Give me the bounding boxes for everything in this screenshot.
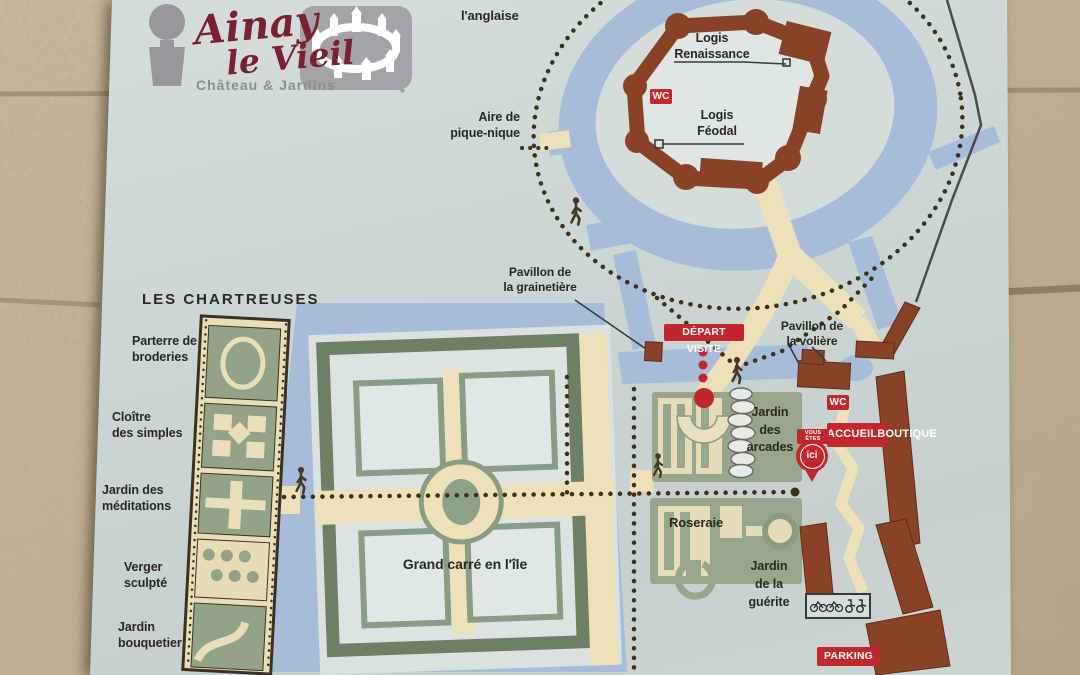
- path-end-dot: [791, 488, 800, 497]
- topiary-icon: [149, 4, 185, 86]
- label-cloitre-des-simples: Cloîtredes simples: [112, 410, 182, 441]
- label-jardin-de-la-guerite: Jardinde laguérite: [740, 557, 798, 611]
- label-logis-renaissance: LogisRenaissance: [666, 31, 758, 62]
- accueil-boutique-badge: ACCUEILBOUTIQUE: [827, 423, 887, 447]
- label-anglaise: l'anglaise: [461, 8, 519, 24]
- bike-and-accessibility-box: [806, 594, 870, 618]
- label-jardin-bouquetier: Jardinbouquetier: [118, 620, 182, 651]
- label-pavillon-voliere: Pavillon dela volière: [762, 319, 862, 349]
- depart-visite-badge: DÉPART VISITE: [664, 324, 744, 341]
- label-les-chartreuses: LES CHARTREUSES: [142, 291, 320, 310]
- you-are-here-pin: ici: [796, 440, 828, 472]
- label-parterre-de-broderies: Parterre debroderies: [132, 334, 197, 365]
- chartreuses-garden-strip: [183, 316, 289, 674]
- logo-subtitle: Château & Jardins: [196, 77, 336, 93]
- you-are-here-pin-text: ici: [800, 444, 825, 469]
- walker-icon: [571, 197, 580, 224]
- photo-of-garden-map-sign: Ainay le Vieil Château & Jardins l'angla…: [0, 0, 1080, 675]
- wc-badge-accueil: WC: [827, 395, 849, 410]
- grand-carre-island: [308, 325, 622, 675]
- label-roseraie: Roseraie: [669, 515, 723, 531]
- label-jardin-des-meditations: Jardin desméditations: [102, 483, 171, 514]
- parking-badge: PARKING: [817, 647, 880, 666]
- label-logis-feodal: LogisFéodal: [672, 108, 762, 139]
- label-grand-carre: Grand carré en l'île: [390, 556, 540, 574]
- label-jardin-des-arcades: Jardindesarcades: [744, 404, 796, 457]
- label-aire-de-pique-nique: Aire depique-nique: [436, 110, 520, 141]
- wc-badge-castle: WC: [650, 89, 672, 104]
- map-sign-panel: Ainay le Vieil Château & Jardins l'angla…: [0, 0, 1080, 675]
- label-verger-sculpte: Vergersculpté: [124, 560, 167, 591]
- label-pavillon-grainetiere: Pavillon dela grainetière: [490, 265, 590, 295]
